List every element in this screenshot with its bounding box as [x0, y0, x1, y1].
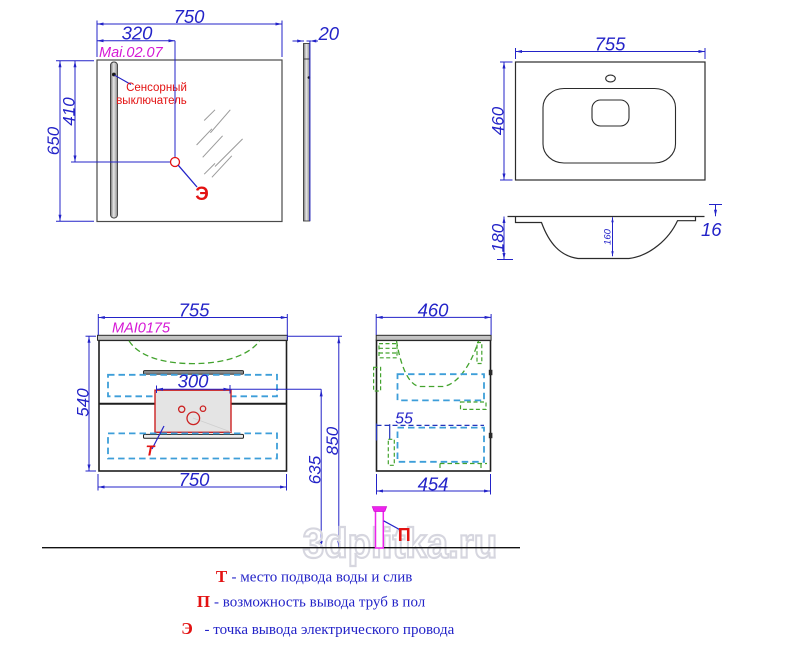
- svg-text:460: 460: [488, 106, 507, 135]
- svg-text:160: 160: [603, 228, 614, 245]
- svg-text:Mai.02.07: Mai.02.07: [99, 45, 164, 61]
- svg-text:850: 850: [323, 426, 342, 455]
- svg-text:180: 180: [488, 223, 507, 252]
- svg-text:460: 460: [418, 299, 450, 320]
- svg-text:55: 55: [395, 410, 413, 427]
- svg-text:- место подвода воды и слив: - место подвода воды и слив: [232, 570, 413, 586]
- svg-text:20: 20: [318, 23, 340, 44]
- svg-text:755: 755: [179, 300, 211, 321]
- svg-text:650: 650: [44, 126, 63, 155]
- svg-text:755: 755: [595, 34, 627, 55]
- svg-text:16: 16: [701, 219, 722, 240]
- svg-text:Т: Т: [216, 567, 228, 586]
- svg-text:Сенсорный: Сенсорный: [126, 82, 187, 94]
- svg-text:750: 750: [179, 469, 211, 490]
- svg-text:- точка вывода электрического: - точка вывода электрического провода: [205, 622, 455, 638]
- svg-text:300: 300: [178, 371, 210, 392]
- svg-text:750: 750: [174, 6, 206, 27]
- svg-text:MAI0175: MAI0175: [112, 321, 171, 337]
- svg-text:410: 410: [59, 97, 78, 126]
- svg-text:Э: Э: [195, 184, 209, 205]
- svg-text:540: 540: [73, 388, 92, 417]
- svg-text:П: П: [197, 592, 210, 611]
- svg-text:454: 454: [418, 474, 449, 495]
- svg-text:Т: Т: [146, 444, 156, 460]
- svg-text:выключатель: выключатель: [116, 95, 187, 107]
- svg-text:635: 635: [306, 455, 325, 484]
- svg-text:Э: Э: [181, 619, 193, 638]
- svg-text:- возможность вывода труб в по: - возможность вывода труб в пол: [214, 594, 426, 610]
- svg-text:П: П: [398, 525, 411, 545]
- svg-text:320: 320: [122, 23, 154, 44]
